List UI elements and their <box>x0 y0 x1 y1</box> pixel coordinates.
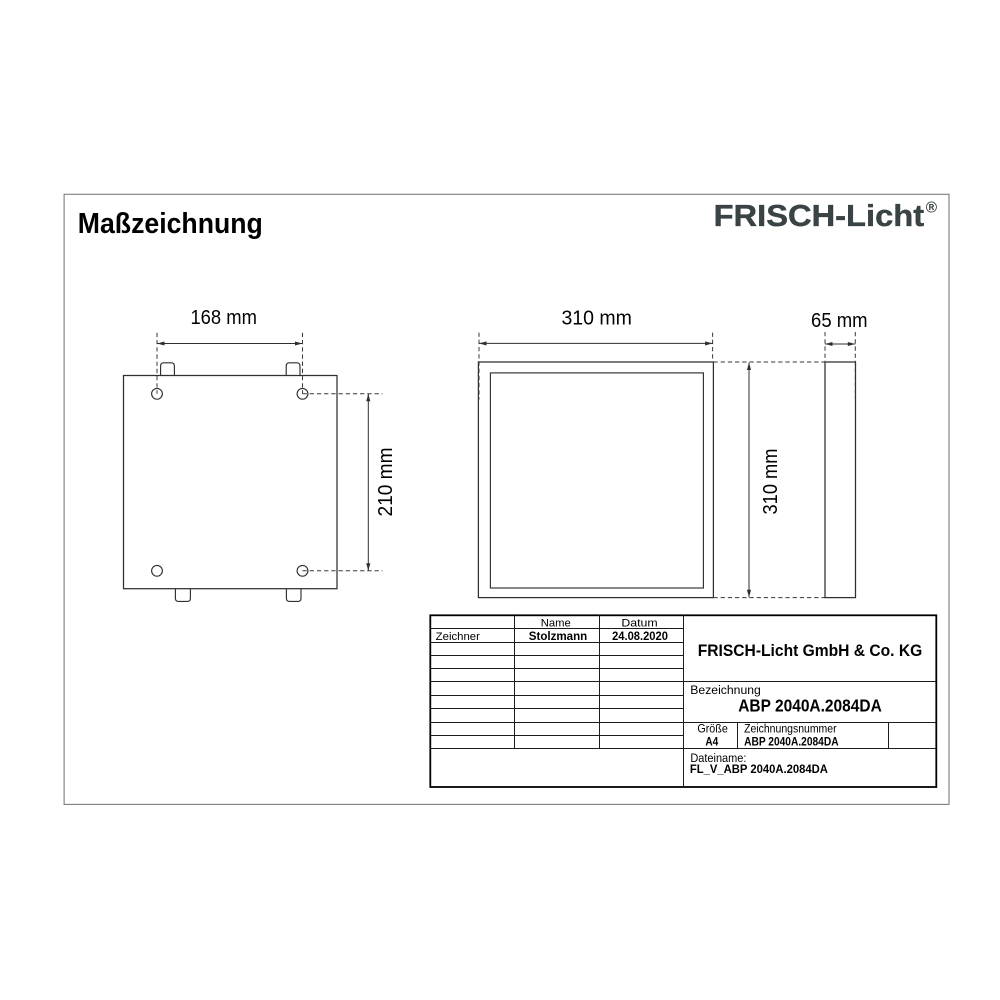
svg-text:Stolzmann: Stolzmann <box>529 631 588 643</box>
svg-text:ABP 2040A.2084DA: ABP 2040A.2084DA <box>744 736 839 749</box>
svg-text:Maßzeichnung: Maßzeichnung <box>78 208 263 240</box>
svg-text:A4: A4 <box>705 737 718 749</box>
svg-text:310 mm: 310 mm <box>759 449 782 515</box>
svg-text:ABP 2040A.2084DA: ABP 2040A.2084DA <box>738 696 882 716</box>
svg-text:24.08.2020: 24.08.2020 <box>612 631 668 643</box>
svg-text:210 mm: 210 mm <box>374 448 397 517</box>
svg-text:FL_V_ABP 2040A.2084DA: FL_V_ABP 2040A.2084DA <box>690 762 828 776</box>
svg-text:65 mm: 65 mm <box>811 309 868 332</box>
svg-text:FRISCH-Licht: FRISCH-Licht <box>714 199 925 233</box>
svg-text:Zeichnungsnummer: Zeichnungsnummer <box>744 722 837 736</box>
svg-text:®: ® <box>926 200 938 217</box>
svg-text:Größe: Größe <box>697 722 728 736</box>
svg-text:Datum: Datum <box>621 618 657 630</box>
svg-text:168 mm: 168 mm <box>190 306 257 329</box>
svg-text:Name: Name <box>541 618 571 630</box>
svg-text:310 mm: 310 mm <box>561 307 632 330</box>
svg-text:Zeichner: Zeichner <box>436 631 480 643</box>
svg-text:FRISCH-Licht GmbH & Co. KG: FRISCH-Licht GmbH & Co. KG <box>698 641 923 660</box>
